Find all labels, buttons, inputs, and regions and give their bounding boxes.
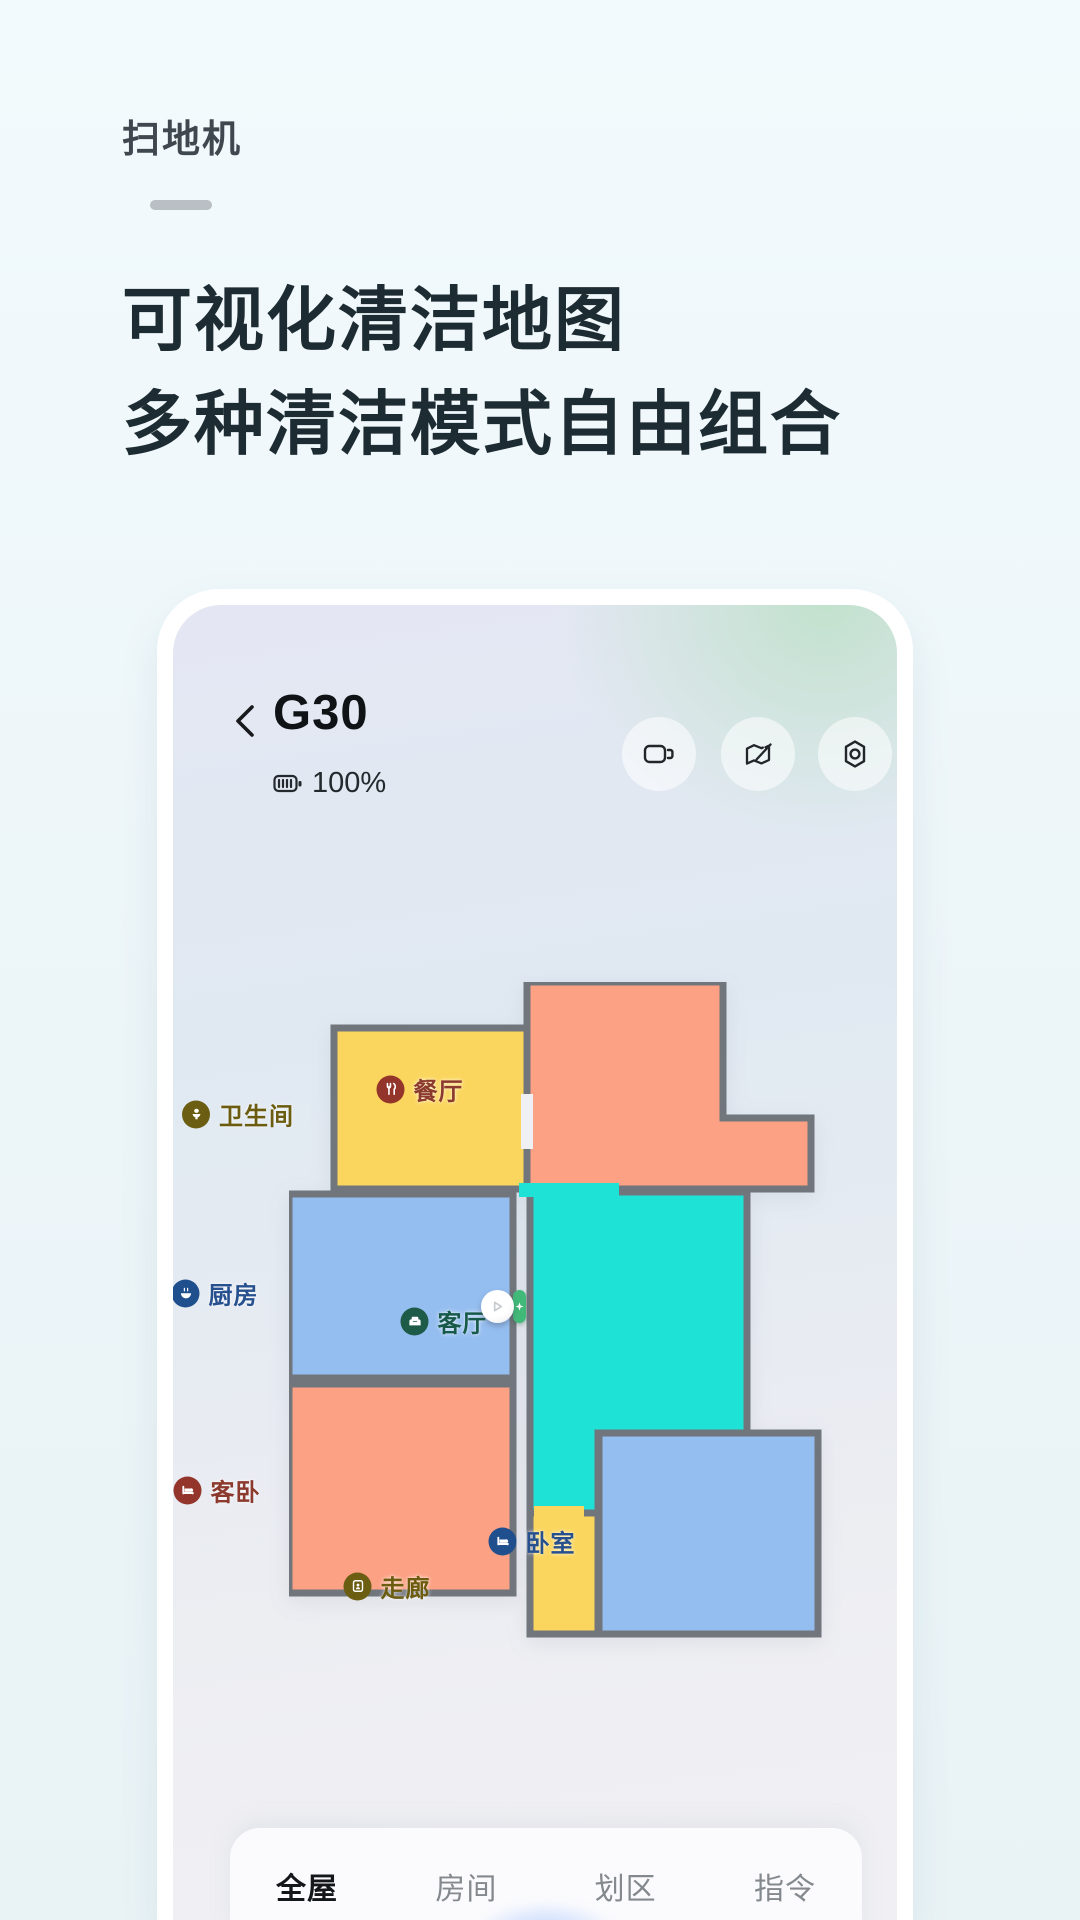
door-gap	[519, 1183, 619, 1197]
edit-map-button[interactable]	[721, 717, 795, 791]
bottom-tab-panel: 全屋 房间 划区 指令	[230, 1828, 862, 1920]
settings-icon	[839, 738, 871, 770]
room-label-bedroom: 卧室	[489, 1524, 576, 1559]
room-label-corridor: 走廊	[344, 1569, 431, 1604]
charging-dock	[513, 1290, 526, 1323]
door-gap	[534, 1506, 584, 1519]
robot-vacuum[interactable]	[481, 1290, 514, 1323]
room-label-text: 餐厅	[414, 1072, 464, 1107]
bed-icon	[489, 1527, 517, 1555]
room-kitchen[interactable]	[289, 1194, 513, 1378]
page-title: 扫地机	[122, 108, 242, 163]
battery-percent: 100%	[312, 767, 386, 800]
tab-command[interactable]: 指令	[748, 1864, 822, 1908]
video-camera-icon	[643, 739, 675, 769]
room-label-text: 卧室	[526, 1524, 576, 1559]
room-dining[interactable]	[527, 982, 811, 1189]
room-label-living: 客厅	[401, 1304, 488, 1339]
tab-label: 房间	[435, 1873, 497, 1906]
settings-button[interactable]	[818, 717, 892, 791]
phone-mockup-card: G30 100%	[157, 589, 913, 1920]
battery-icon	[273, 773, 303, 795]
play-direction-icon	[490, 1299, 505, 1314]
room-guest-bedroom[interactable]	[289, 1384, 513, 1593]
tab-label: 划区	[595, 1873, 657, 1906]
title-divider	[150, 200, 212, 210]
room-label-text: 客卧	[211, 1473, 261, 1508]
back-button[interactable]	[225, 699, 269, 743]
sofa-icon	[401, 1307, 429, 1335]
door-gap	[521, 1094, 533, 1149]
room-label-guest-bedroom: 客卧	[174, 1473, 261, 1508]
map-edit-icon	[742, 739, 774, 769]
device-name: G30	[273, 685, 369, 741]
room-bathroom[interactable]	[334, 1028, 527, 1189]
room-label-kitchen: 厨房	[173, 1276, 259, 1311]
chevron-left-icon	[225, 699, 269, 743]
tab-zone[interactable]: 划区	[589, 1864, 663, 1908]
tab-label: 全屋	[276, 1873, 338, 1906]
room-bedroom[interactable]	[599, 1433, 818, 1634]
spark-icon	[515, 1302, 524, 1311]
room-label-text: 客厅	[438, 1304, 488, 1339]
bed-icon	[174, 1476, 202, 1504]
headline-line1: 可视化清洁地图	[122, 268, 842, 372]
toilet-icon	[182, 1100, 210, 1128]
headline-line2: 多种清洁模式自由组合	[122, 372, 842, 476]
bowl-icon	[173, 1279, 200, 1307]
tab-label: 指令	[754, 1873, 816, 1906]
battery-status: 100%	[273, 767, 386, 800]
headline: 可视化清洁地图 多种清洁模式自由组合	[122, 268, 842, 476]
room-label-text: 厨房	[209, 1276, 259, 1311]
room-label-dining: 餐厅	[377, 1072, 464, 1107]
tab-whole-house[interactable]: 全屋	[270, 1864, 344, 1908]
cutlery-icon	[377, 1075, 405, 1103]
room-label-text: 卫生间	[219, 1097, 294, 1132]
camera-button[interactable]	[622, 717, 696, 791]
room-label-bathroom: 卫生间	[182, 1097, 294, 1132]
door-icon	[344, 1572, 372, 1600]
app-screen: G30 100%	[173, 605, 897, 1920]
tab-room[interactable]: 房间	[429, 1864, 503, 1908]
room-label-text: 走廊	[381, 1569, 431, 1604]
